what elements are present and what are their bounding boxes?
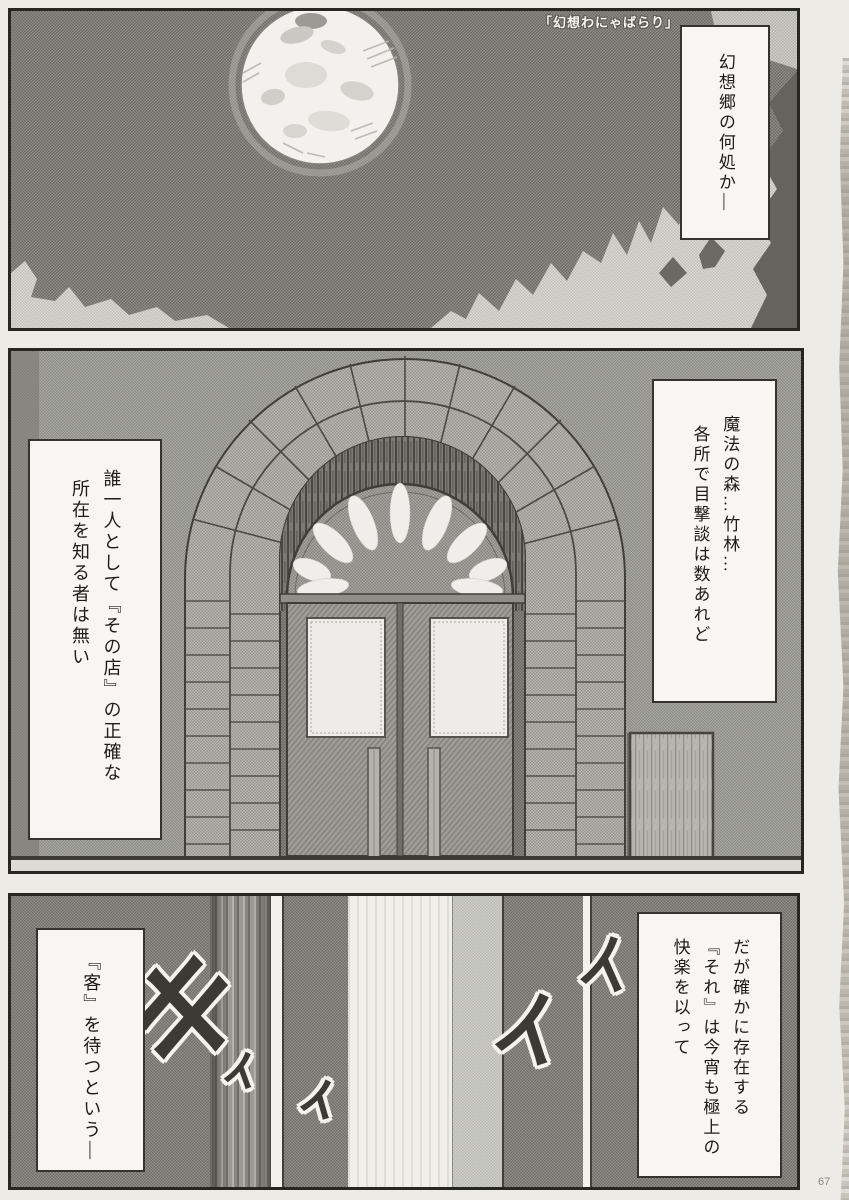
panel-door-opening: キ ィ ィ イ イ だが確かに存在する 『それ』は今宵も極上の 快楽を以って 『… (8, 893, 800, 1190)
series-caption: 「幻想わにゃばらり」 (539, 12, 679, 31)
narration-box-top: 幻想郷の何処か— (680, 25, 770, 240)
narration-text: だが確かに存在する (724, 938, 754, 1176)
narration-text: 魔法の森…竹林… (715, 415, 745, 701)
door-panel-left (307, 618, 385, 737)
door-center-seam (397, 603, 403, 856)
double-doors (287, 603, 513, 858)
narration-text: 『それ』は今宵も極上の (695, 938, 725, 1176)
ground-line (11, 856, 801, 860)
manga-page: 「幻想わにゃばらり」 幻想郷の何処か— (0, 0, 849, 1200)
narration-text: 所在を知る者は無い (64, 469, 96, 838)
narration-top-text: 幻想郷の何処か— (710, 53, 740, 238)
bright-opening (348, 896, 452, 1187)
narration-text: 『客』を待つという— (75, 952, 107, 1170)
wooden-plaque (627, 733, 713, 858)
panel-shop-door: 魔法の森…竹林… 各所で目撃談は数あれど 誰一人として『その店』の正確な 所在を… (8, 348, 804, 874)
light-gap-1 (271, 896, 282, 1187)
paper-edge-texture (835, 58, 849, 1200)
door-slab-1 (282, 896, 350, 1187)
ground-strip (11, 860, 801, 871)
narration-box-bottom-right: だが確かに存在する 『それ』は今宵も極上の 快楽を以って (637, 912, 782, 1178)
full-moon-illustration (232, 11, 408, 173)
narration-text: 各所で目撃談は数あれど (685, 415, 715, 701)
panel-night-sky: 「幻想わにゃばらり」 幻想郷の何処か— (8, 8, 800, 331)
door-panel-right (430, 618, 508, 737)
narration-text: 快楽を以って (665, 938, 695, 1176)
narration-box-bottom-left: 『客』を待つという— (36, 928, 145, 1172)
page-number: 67 (818, 1176, 830, 1188)
narration-text: 誰一人として『その店』の正確な (95, 469, 127, 838)
narration-box-middle-left: 誰一人として『その店』の正確な 所在を知る者は無い (28, 439, 162, 840)
narration-box-middle-right: 魔法の森…竹林… 各所で目撃談は数あれど (652, 379, 777, 703)
